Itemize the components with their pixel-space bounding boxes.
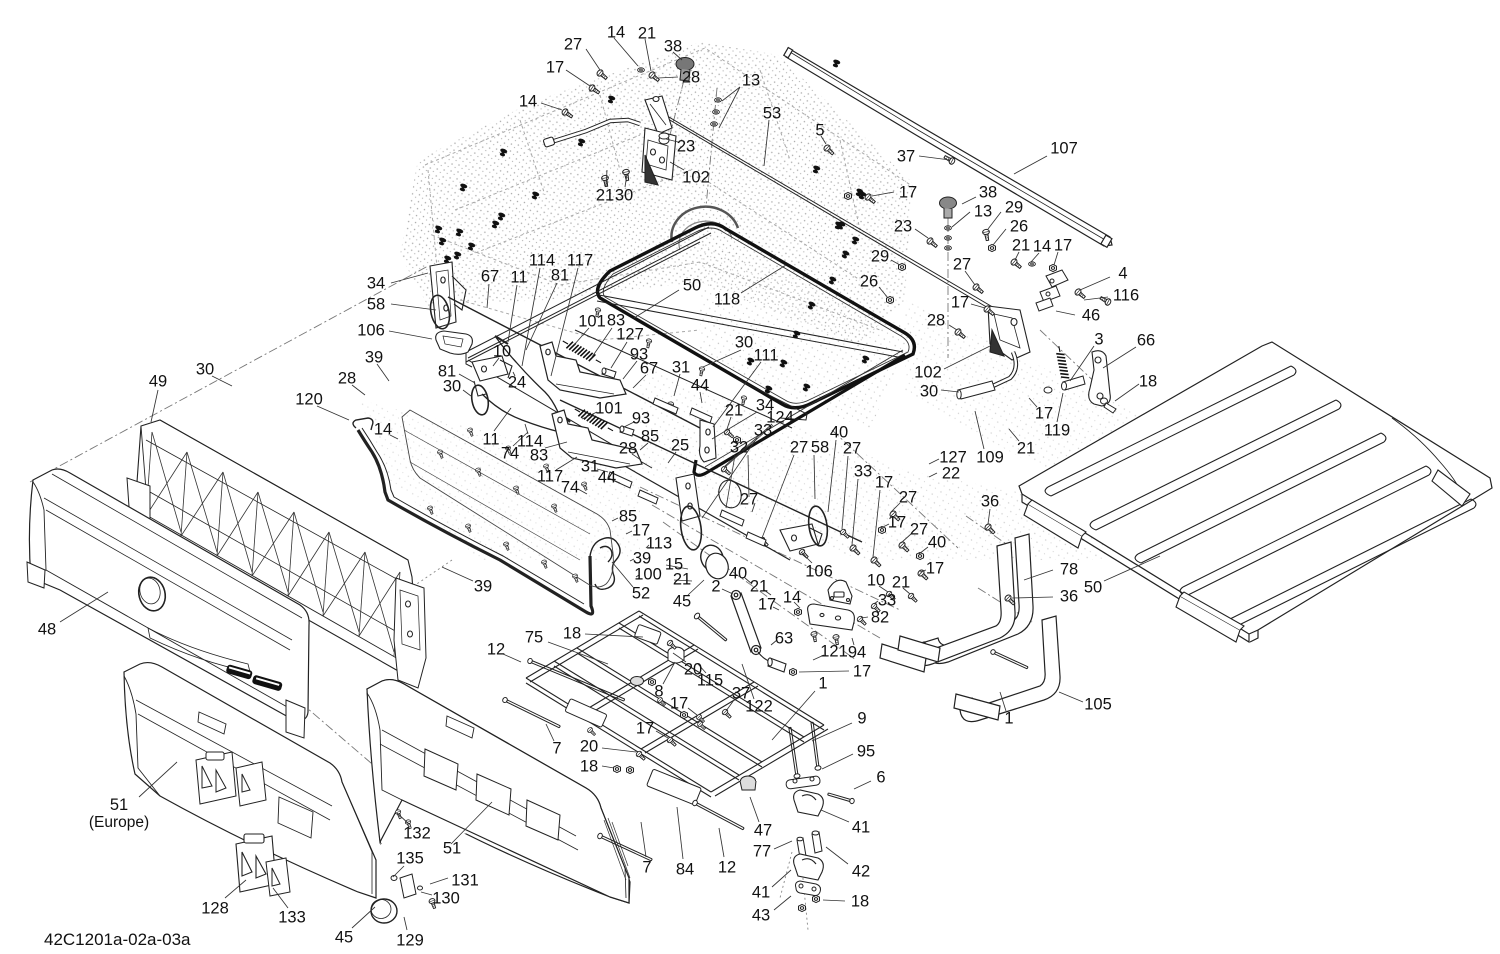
- svg-text:40: 40: [928, 534, 946, 552]
- svg-text:33: 33: [878, 592, 896, 610]
- svg-text:24: 24: [508, 374, 526, 392]
- svg-text:83: 83: [530, 447, 548, 465]
- svg-text:122: 122: [745, 698, 773, 716]
- svg-text:50: 50: [1084, 579, 1102, 597]
- svg-text:21: 21: [638, 25, 656, 43]
- svg-text:20: 20: [580, 738, 598, 756]
- svg-text:38: 38: [664, 38, 682, 56]
- svg-text:27: 27: [790, 439, 808, 457]
- svg-text:42: 42: [852, 863, 870, 881]
- svg-text:17: 17: [546, 59, 564, 77]
- svg-text:36: 36: [981, 493, 999, 511]
- svg-text:7: 7: [552, 740, 561, 758]
- svg-text:107: 107: [1050, 140, 1078, 158]
- svg-text:101: 101: [578, 313, 606, 331]
- svg-text:85: 85: [641, 428, 659, 446]
- svg-text:44: 44: [598, 469, 616, 487]
- svg-text:27: 27: [843, 440, 861, 458]
- svg-text:117: 117: [537, 468, 563, 486]
- svg-text:30: 30: [615, 187, 633, 205]
- svg-text:17: 17: [1054, 237, 1072, 255]
- svg-text:14: 14: [374, 421, 392, 439]
- svg-text:109: 109: [976, 449, 1004, 467]
- svg-text:21: 21: [596, 187, 614, 205]
- svg-text:118: 118: [714, 291, 740, 309]
- svg-text:18: 18: [563, 625, 581, 643]
- svg-text:30: 30: [920, 383, 938, 401]
- svg-text:27: 27: [740, 491, 758, 509]
- svg-text:14: 14: [783, 589, 801, 607]
- svg-text:14: 14: [1033, 238, 1051, 256]
- svg-text:21: 21: [1017, 440, 1035, 458]
- svg-text:17: 17: [888, 514, 906, 532]
- svg-text:10: 10: [867, 572, 885, 590]
- svg-text:12: 12: [487, 641, 505, 659]
- svg-text:13: 13: [742, 72, 760, 90]
- svg-text:26: 26: [860, 273, 878, 291]
- svg-text:7: 7: [642, 859, 651, 877]
- svg-text:46: 46: [1082, 307, 1100, 325]
- svg-text:129: 129: [396, 932, 424, 950]
- svg-text:22: 22: [942, 465, 960, 483]
- svg-text:21: 21: [750, 578, 768, 596]
- svg-text:31: 31: [672, 359, 690, 377]
- svg-text:23: 23: [677, 138, 695, 156]
- svg-text:32: 32: [730, 439, 748, 457]
- svg-text:25: 25: [671, 437, 689, 455]
- svg-text:17: 17: [951, 294, 969, 312]
- svg-text:31: 31: [581, 458, 599, 476]
- svg-text:17: 17: [875, 474, 893, 492]
- svg-text:77: 77: [753, 843, 771, 861]
- svg-text:40: 40: [729, 565, 747, 583]
- svg-text:21: 21: [892, 574, 910, 592]
- svg-text:130: 130: [432, 890, 460, 908]
- svg-text:117: 117: [567, 252, 593, 270]
- svg-text:33: 33: [754, 422, 772, 440]
- svg-text:34: 34: [367, 275, 385, 293]
- svg-text:28: 28: [682, 69, 700, 87]
- svg-text:11: 11: [510, 269, 527, 287]
- svg-text:84: 84: [676, 861, 694, 879]
- svg-text:74: 74: [561, 479, 579, 497]
- svg-text:10: 10: [493, 343, 511, 361]
- svg-text:17: 17: [1035, 405, 1053, 423]
- svg-text:2: 2: [711, 578, 720, 596]
- svg-text:45: 45: [335, 929, 353, 947]
- svg-text:94: 94: [848, 644, 866, 662]
- svg-text:21: 21: [673, 571, 691, 589]
- svg-text:41: 41: [852, 819, 870, 837]
- svg-text:14: 14: [519, 93, 537, 111]
- svg-text:101: 101: [595, 400, 623, 418]
- svg-text:135: 135: [396, 850, 424, 868]
- svg-text:18: 18: [1139, 373, 1157, 391]
- svg-text:106: 106: [357, 322, 385, 340]
- svg-text:39: 39: [365, 349, 383, 367]
- svg-text:12: 12: [718, 859, 736, 877]
- svg-text:27: 27: [564, 36, 582, 54]
- svg-text:132: 132: [403, 825, 431, 843]
- svg-text:48: 48: [38, 621, 56, 639]
- svg-text:39: 39: [474, 578, 492, 596]
- svg-text:41: 41: [752, 884, 770, 902]
- svg-text:95: 95: [857, 743, 875, 761]
- svg-text:82: 82: [871, 609, 889, 627]
- svg-text:50: 50: [683, 277, 701, 295]
- svg-text:51: 51: [443, 840, 461, 858]
- svg-text:42C1201a-02a-03a: 42C1201a-02a-03a: [44, 930, 191, 949]
- svg-text:17: 17: [636, 720, 654, 738]
- svg-text:93: 93: [632, 410, 650, 428]
- svg-text:11: 11: [482, 431, 499, 449]
- svg-text:58: 58: [367, 296, 385, 314]
- svg-text:27: 27: [953, 256, 971, 274]
- svg-text:21: 21: [725, 402, 743, 420]
- svg-text:(Europe): (Europe): [89, 814, 149, 831]
- svg-text:102: 102: [914, 364, 942, 382]
- svg-text:4: 4: [1118, 265, 1127, 283]
- svg-text:45: 45: [673, 593, 691, 611]
- svg-text:37: 37: [897, 148, 915, 166]
- svg-text:14: 14: [607, 24, 625, 42]
- svg-text:17: 17: [926, 560, 944, 578]
- svg-text:133: 133: [278, 909, 306, 927]
- svg-text:30: 30: [443, 378, 461, 396]
- svg-text:27: 27: [899, 489, 917, 507]
- svg-text:28: 28: [927, 312, 945, 330]
- svg-text:38: 38: [979, 184, 997, 202]
- svg-text:29: 29: [871, 248, 889, 266]
- svg-text:127: 127: [616, 326, 644, 344]
- svg-text:9: 9: [857, 710, 866, 728]
- svg-text:128: 128: [201, 900, 229, 918]
- svg-text:3: 3: [1094, 331, 1103, 349]
- svg-text:29: 29: [1005, 199, 1023, 217]
- svg-text:106: 106: [805, 563, 833, 581]
- svg-text:53: 53: [763, 105, 781, 123]
- svg-text:23: 23: [894, 218, 912, 236]
- svg-text:28: 28: [338, 370, 356, 388]
- svg-text:43: 43: [752, 907, 770, 925]
- svg-text:6: 6: [876, 769, 885, 787]
- svg-text:63: 63: [775, 630, 793, 648]
- svg-text:105: 105: [1084, 696, 1112, 714]
- svg-text:120: 120: [295, 391, 323, 409]
- svg-text:8: 8: [654, 683, 663, 701]
- svg-text:66: 66: [1137, 332, 1155, 350]
- svg-text:17: 17: [758, 596, 776, 614]
- svg-text:67: 67: [481, 268, 499, 286]
- svg-text:51: 51: [110, 796, 128, 814]
- svg-text:58: 58: [811, 439, 829, 457]
- svg-text:27: 27: [910, 521, 928, 539]
- svg-text:102: 102: [682, 169, 710, 187]
- svg-text:47: 47: [754, 822, 772, 840]
- svg-text:13: 13: [974, 203, 992, 221]
- svg-text:49: 49: [149, 373, 167, 391]
- svg-text:30: 30: [735, 334, 753, 352]
- svg-text:17: 17: [670, 695, 688, 713]
- svg-text:121: 121: [820, 643, 848, 661]
- svg-text:36: 36: [1060, 588, 1078, 606]
- svg-text:116: 116: [1113, 287, 1139, 305]
- svg-text:100: 100: [634, 566, 662, 584]
- svg-text:5: 5: [815, 122, 824, 140]
- svg-text:17: 17: [899, 184, 917, 202]
- svg-text:67: 67: [640, 360, 658, 378]
- svg-text:111: 111: [753, 347, 778, 365]
- svg-text:18: 18: [851, 893, 869, 911]
- svg-text:78: 78: [1060, 561, 1078, 579]
- svg-text:33: 33: [854, 463, 872, 481]
- svg-text:1: 1: [818, 675, 827, 693]
- svg-text:17: 17: [853, 663, 871, 681]
- svg-text:18: 18: [580, 758, 598, 776]
- svg-text:75: 75: [525, 629, 543, 647]
- svg-text:52: 52: [632, 585, 650, 603]
- svg-text:21: 21: [1012, 237, 1030, 255]
- svg-text:30: 30: [196, 361, 214, 379]
- svg-text:1: 1: [1004, 710, 1013, 728]
- svg-text:131: 131: [451, 872, 479, 890]
- svg-text:28: 28: [619, 440, 637, 458]
- svg-text:26: 26: [1010, 218, 1028, 236]
- svg-text:119: 119: [1044, 422, 1070, 440]
- svg-text:44: 44: [691, 377, 709, 395]
- svg-text:115: 115: [697, 672, 723, 690]
